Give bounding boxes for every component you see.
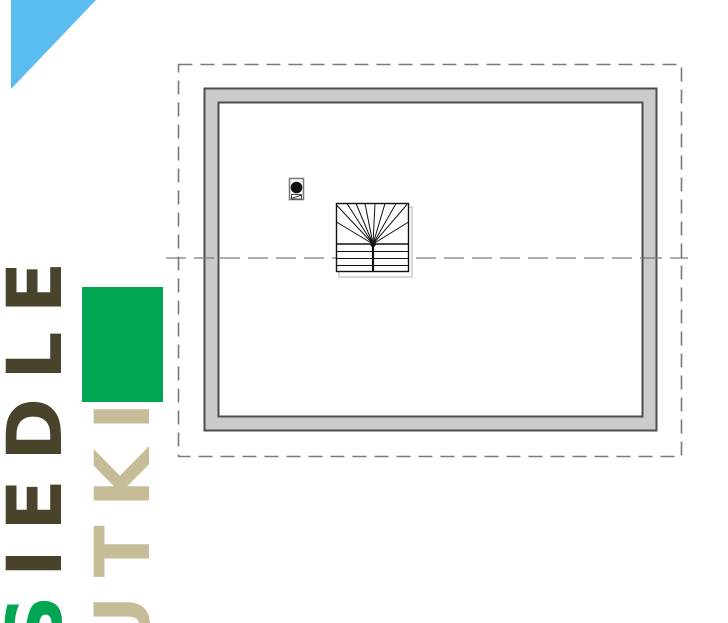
exterior-wall-inner: [219, 103, 643, 417]
page: SIEDLE UTKI: [0, 0, 728, 623]
chimney-flue: [291, 182, 303, 194]
chimney-icon: [290, 179, 304, 200]
winder-staircase-icon: [337, 204, 413, 278]
floor-plan-drawing: [0, 0, 728, 623]
staircase-fan-hub: [370, 242, 375, 247]
